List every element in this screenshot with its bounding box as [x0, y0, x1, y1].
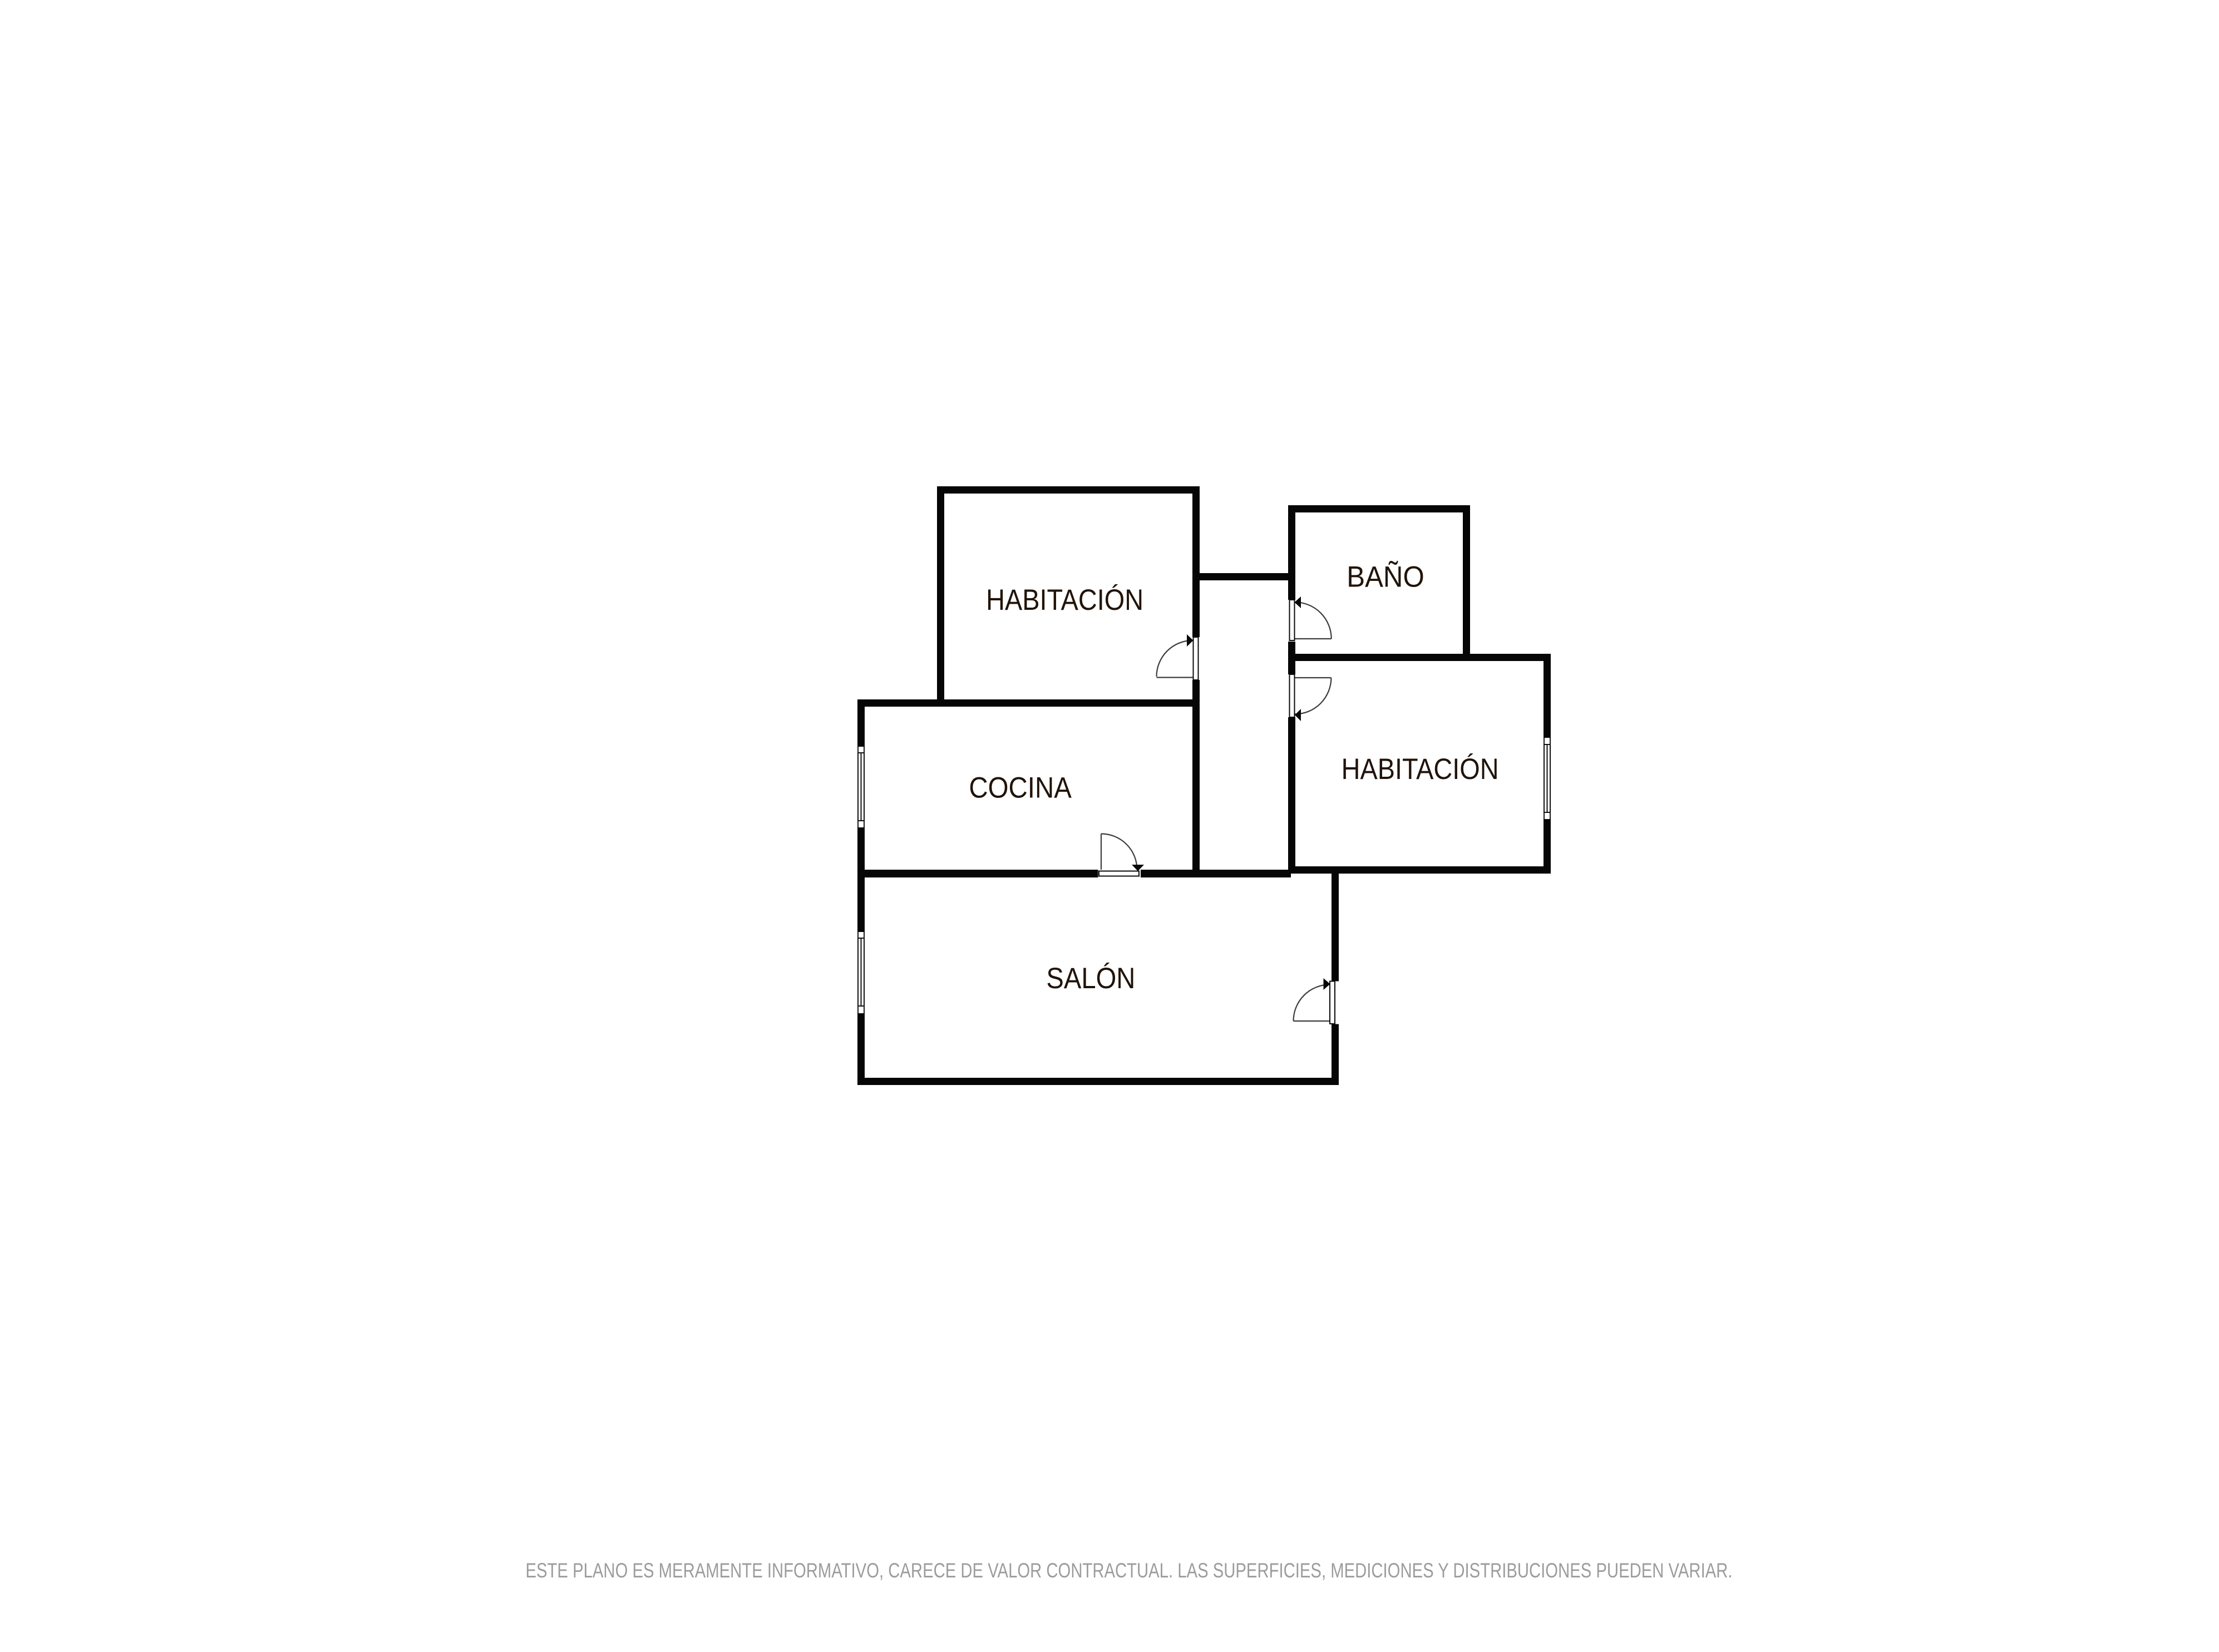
svg-text:HABITACIÓN: HABITACIÓN	[1342, 753, 1499, 786]
svg-text:BAÑO: BAÑO	[1347, 561, 1424, 594]
svg-text:COCINA: COCINA	[969, 772, 1072, 805]
svg-text:HABITACIÓN: HABITACIÓN	[986, 584, 1143, 617]
svg-text:ESTE PLANO ES MERAMENTE INFORM: ESTE PLANO ES MERAMENTE INFORMATIVO, CAR…	[526, 1559, 1733, 1582]
svg-text:SALÓN: SALÓN	[1046, 962, 1135, 995]
